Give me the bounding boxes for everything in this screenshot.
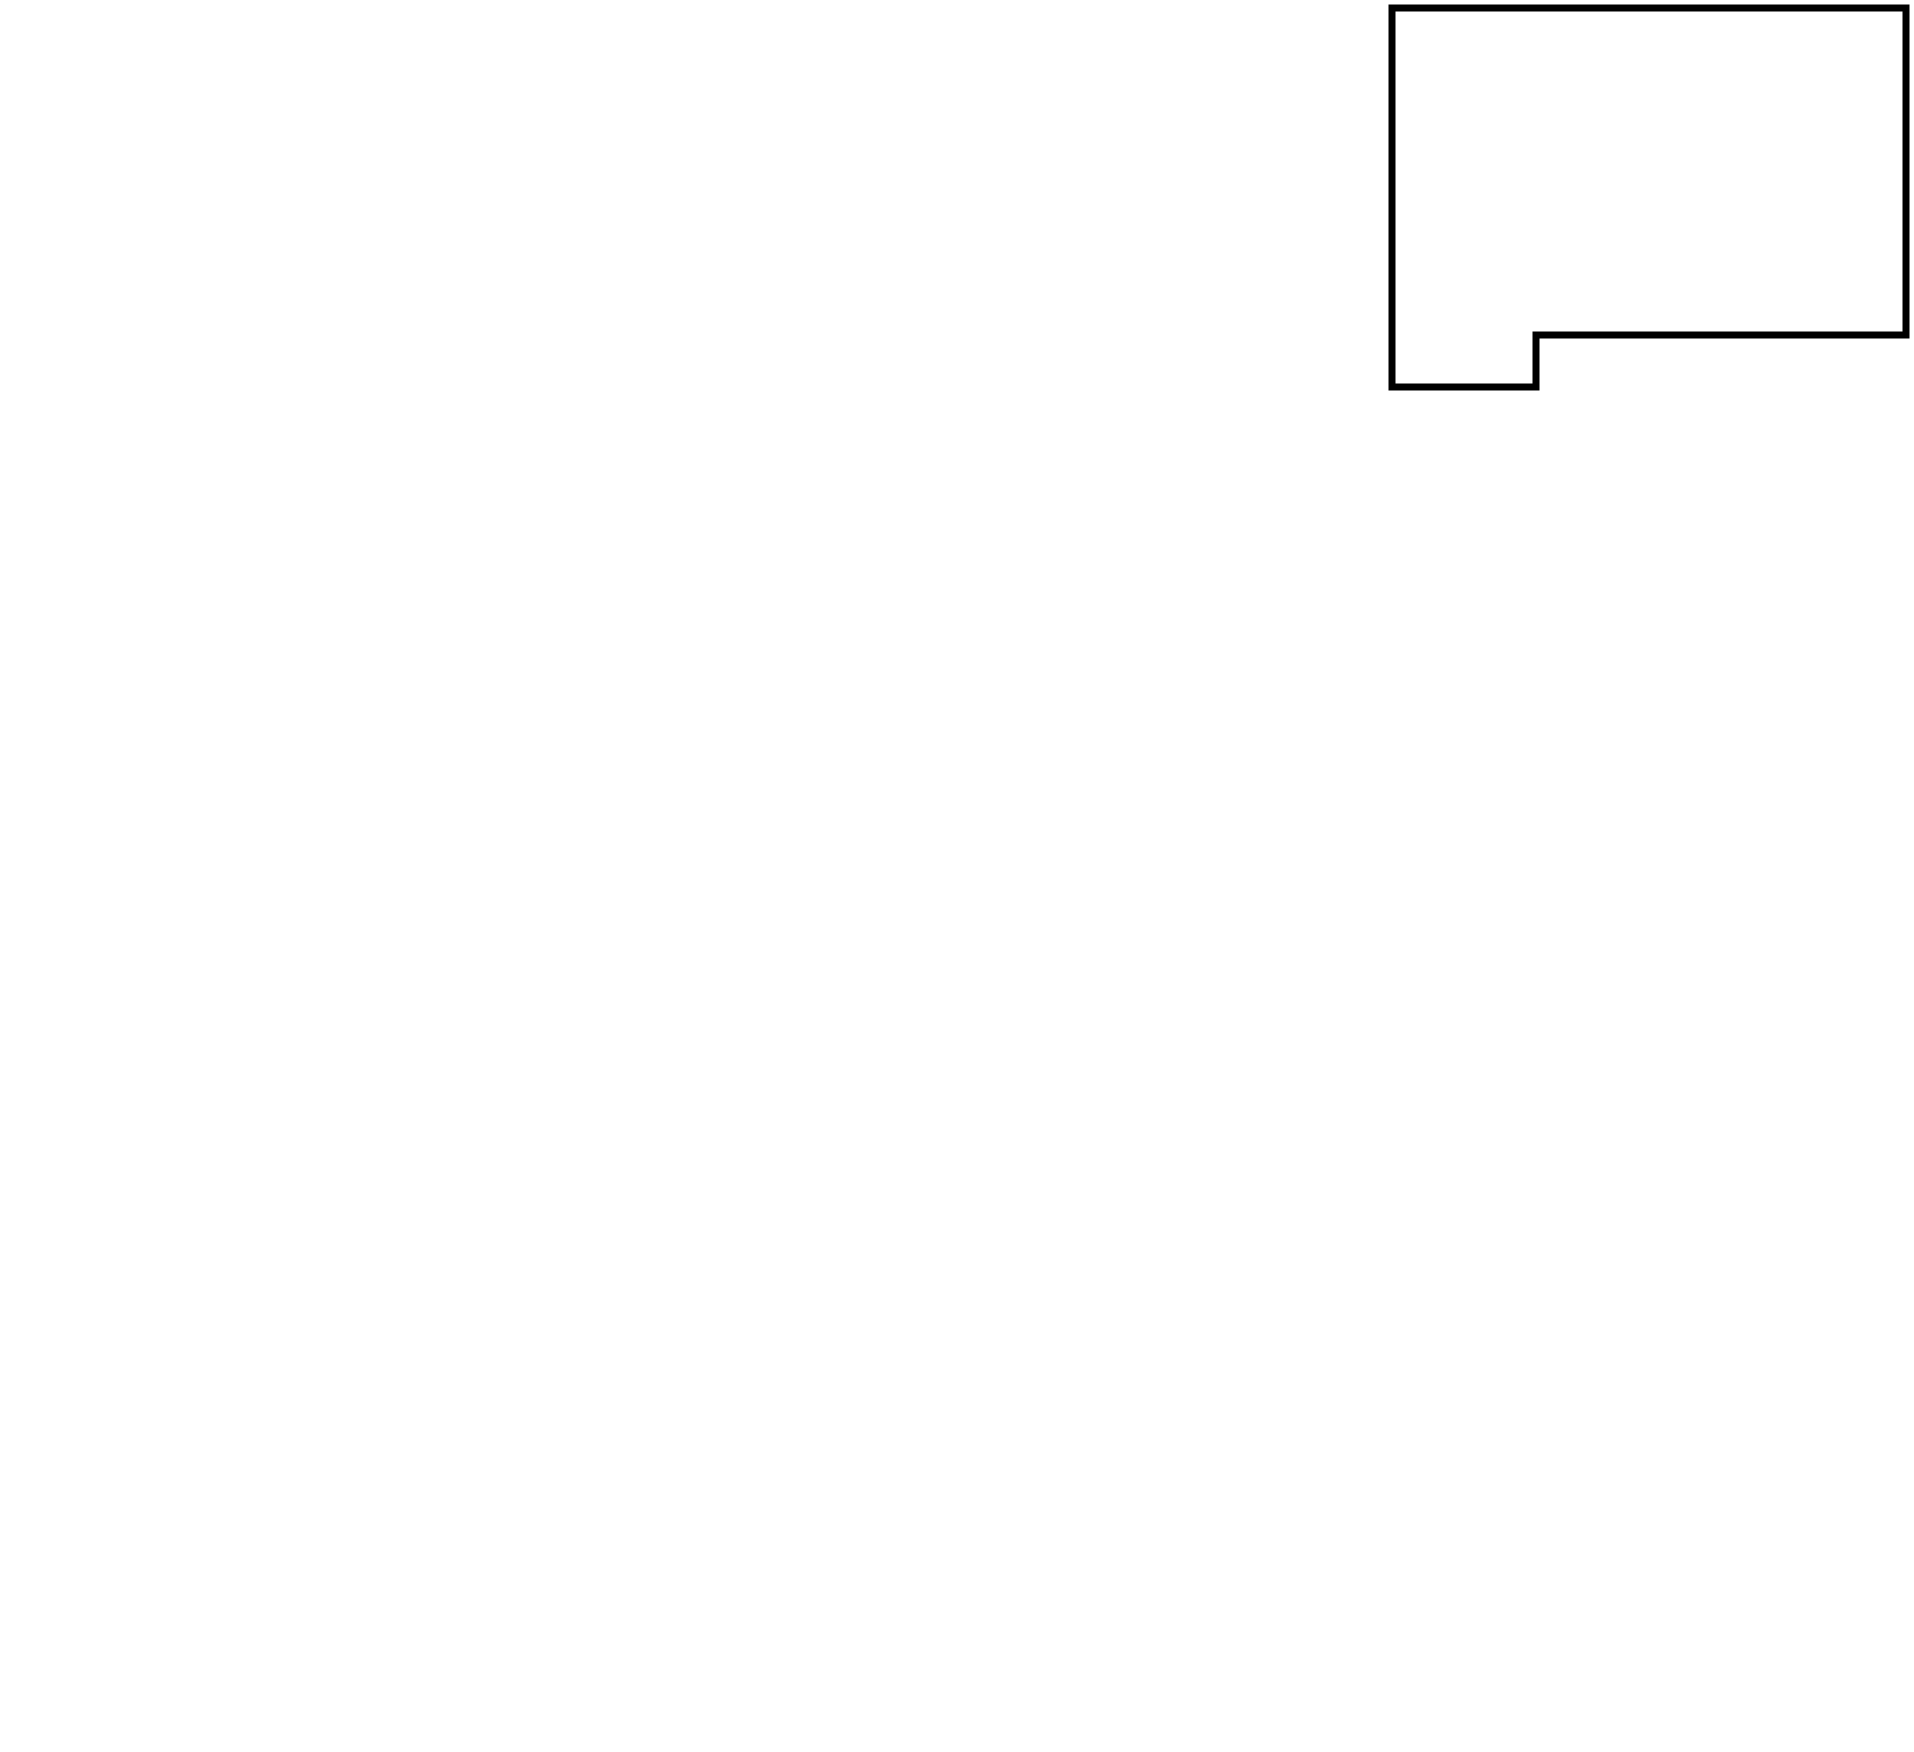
prefecture-cells <box>1392 8 1906 387</box>
japan-tile-map-page <box>0 0 1914 1752</box>
japan-prefecture-tile-map <box>0 0 1914 1752</box>
region-hokkaido <box>1392 8 1906 387</box>
